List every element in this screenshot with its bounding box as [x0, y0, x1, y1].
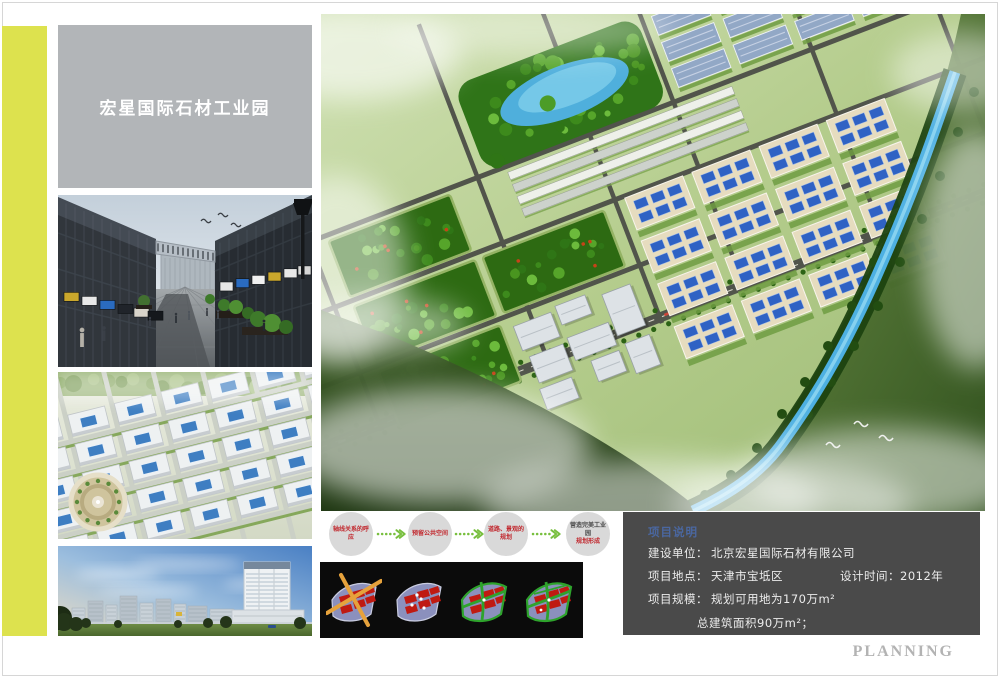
flow-arrow-icon [376, 528, 406, 540]
flow-arrow-icon [454, 528, 484, 540]
masterplan-rendering [321, 14, 985, 511]
area-value: 总建筑面积90万m²； [697, 616, 813, 630]
flow-step-2: 预留公共空间 [408, 512, 452, 556]
concept-diagram-panel [320, 562, 583, 638]
flow-step-1-label: 轴线关系的呼应 [331, 526, 371, 542]
scale-value: 规划可用地为170万m² [711, 592, 835, 606]
design-time-label: 设计时间： [840, 568, 900, 584]
design-time-value: 2012年 [900, 568, 943, 584]
flow-step-4-label: 营造完美工业园 [568, 522, 608, 538]
project-info-panel: 项目说明 建设单位：北京宏星国际石材有限公司 项目地点：天津市宝坻区 设计时间：… [623, 512, 980, 635]
builder-value: 北京宏星国际石材有限公司 [711, 546, 855, 560]
flow-step-2-label: 预留公共空间 [412, 530, 448, 538]
location-value: 天津市宝坻区 [711, 569, 783, 583]
info-heading: 项目说明 [648, 524, 698, 540]
street-view-photo [58, 195, 312, 367]
info-row-area: 总建筑面积90万m²； [648, 615, 972, 631]
industrial-aerial-photo [58, 372, 312, 539]
site-diagram-final [521, 569, 577, 631]
planning-board-page: 宏星国际石材工业园 [0, 0, 1000, 678]
location-label: 项目地点： [648, 569, 708, 583]
info-row-scale: 项目规模：规划可用地为170万m² [648, 591, 972, 607]
skyline-photo [58, 546, 312, 636]
title-panel: 宏星国际石材工业园 [58, 25, 312, 188]
site-diagram-axes [326, 569, 382, 631]
site-diagram-nodes [391, 569, 447, 631]
info-row-builder: 建设单位：北京宏星国际石材有限公司 [648, 545, 972, 561]
planning-watermark: PLANNING [853, 643, 954, 661]
scale-label: 项目规模： [648, 592, 708, 606]
flow-step-3: 道路、景观的规划 [484, 512, 528, 556]
flow-step-4-sublabel: 规划形成 [576, 538, 600, 546]
project-title: 宏星国际石材工业园 [100, 94, 271, 119]
flow-arrow-icon [531, 528, 561, 540]
builder-label: 建设单位： [648, 546, 708, 560]
site-diagram-roads [456, 569, 512, 631]
flow-step-1: 轴线关系的呼应 [329, 512, 373, 556]
info-row-location: 项目地点：天津市宝坻区 设计时间：2012年 [648, 568, 972, 584]
accent-strip [2, 26, 47, 636]
flow-step-3-label: 道路、景观的规划 [486, 526, 526, 542]
flow-step-4: 营造完美工业园 规划形成 [566, 512, 610, 556]
